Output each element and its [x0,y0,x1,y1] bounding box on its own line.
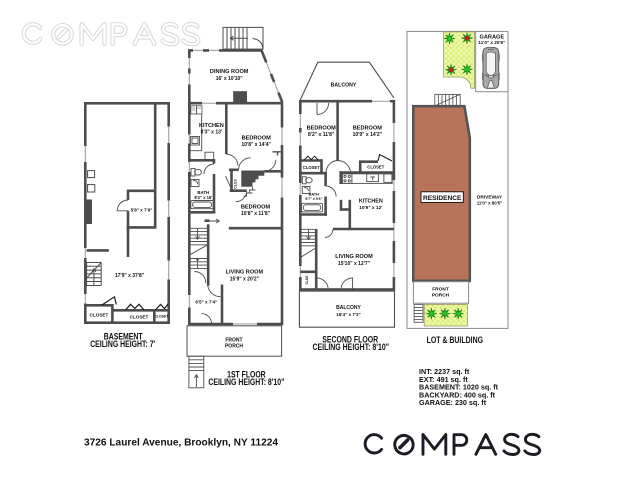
svg-text:CLOSET: CLOSET [90,312,109,317]
svg-text:10'9" x 14'2": 10'9" x 14'2" [353,132,383,138]
svg-text:LOT & BUILDING: LOT & BUILDING [427,335,483,345]
svg-text:KITCHEN: KITCHEN [199,123,224,129]
svg-text:PORCH: PORCH [432,293,450,299]
svg-text:10'8" x 14'4": 10'8" x 14'4" [242,142,272,148]
svg-text:CEILING HEIGHT: 7': CEILING HEIGHT: 7' [90,339,155,349]
svg-text:BEDROOM: BEDROOM [307,126,337,132]
svg-text:BALCONY: BALCONY [331,83,357,89]
svg-text:11'0" x 20'8": 11'0" x 20'8" [478,40,505,45]
svg-text:16' x 10'10": 16' x 10'10" [216,76,244,82]
svg-text:BEDROOM: BEDROOM [241,205,271,211]
svg-text:CLOSET: CLOSET [130,315,149,320]
svg-text:LIVING ROOM: LIVING ROOM [335,254,373,260]
svg-text:8'2" x 16': 8'2" x 16' [194,195,212,200]
svg-text:8'3" x 13': 8'3" x 13' [201,130,222,136]
svg-text:15'9" x 20'2": 15'9" x 20'2" [230,276,260,282]
svg-text:BEDROOM: BEDROOM [242,136,272,142]
svg-text:BEDROOM: BEDROOM [353,126,383,132]
svg-text:KITCHEN: KITCHEN [359,199,383,205]
svg-text:6'5" x 7'4": 6'5" x 7'4" [195,300,217,305]
svg-text:8'2" x 11'8": 8'2" x 11'8" [308,132,335,138]
svg-text:15'10" x 12'7": 15'10" x 12'7" [338,261,371,267]
svg-text:CLOS: CLOS [305,276,309,285]
svg-text:11'0" x 80'5": 11'0" x 80'5" [477,201,503,206]
svg-text:CEILING HEIGHT: 8'10": CEILING HEIGHT: 8'10" [313,342,390,352]
svg-text:GARAGE: 230 sq. ft: GARAGE: 230 sq. ft [419,398,487,407]
svg-text:CLOS: CLOS [234,179,238,189]
svg-text:3726 Laurel Avenue, Brooklyn,: 3726 Laurel Avenue, Brooklyn, NY 11224 [84,437,278,448]
svg-text:BALCONY: BALCONY [336,305,361,311]
svg-text:CEILING HEIGHT: 8'10": CEILING HEIGHT: 8'10" [208,377,284,387]
svg-text:DINING ROOM: DINING ROOM [210,69,249,75]
svg-text:FRONT: FRONT [432,287,449,293]
svg-text:PORCH: PORCH [225,344,243,350]
svg-text:CLOSET: CLOSET [367,164,384,169]
svg-text:10'8" x 11'8": 10'8" x 11'8" [241,211,271,217]
svg-text:17'9" x 37'8": 17'9" x 37'8" [115,273,145,279]
svg-text:LIVING ROOM: LIVING ROOM [226,270,264,276]
svg-text:5'7" x 9'6": 5'7" x 9'6" [305,197,322,201]
svg-text:BATH: BATH [309,193,320,197]
svg-text:5'8" x 7'9": 5'8" x 7'9" [131,208,153,213]
svg-text:10'9" x 12': 10'9" x 12' [359,205,382,211]
svg-text:RESIDENCE: RESIDENCE [423,195,462,202]
svg-text:CLOSET: CLOSET [155,315,170,319]
svg-text:CLOSET: CLOSET [303,165,320,170]
svg-text:18'4" x 7'3": 18'4" x 7'3" [336,312,360,317]
